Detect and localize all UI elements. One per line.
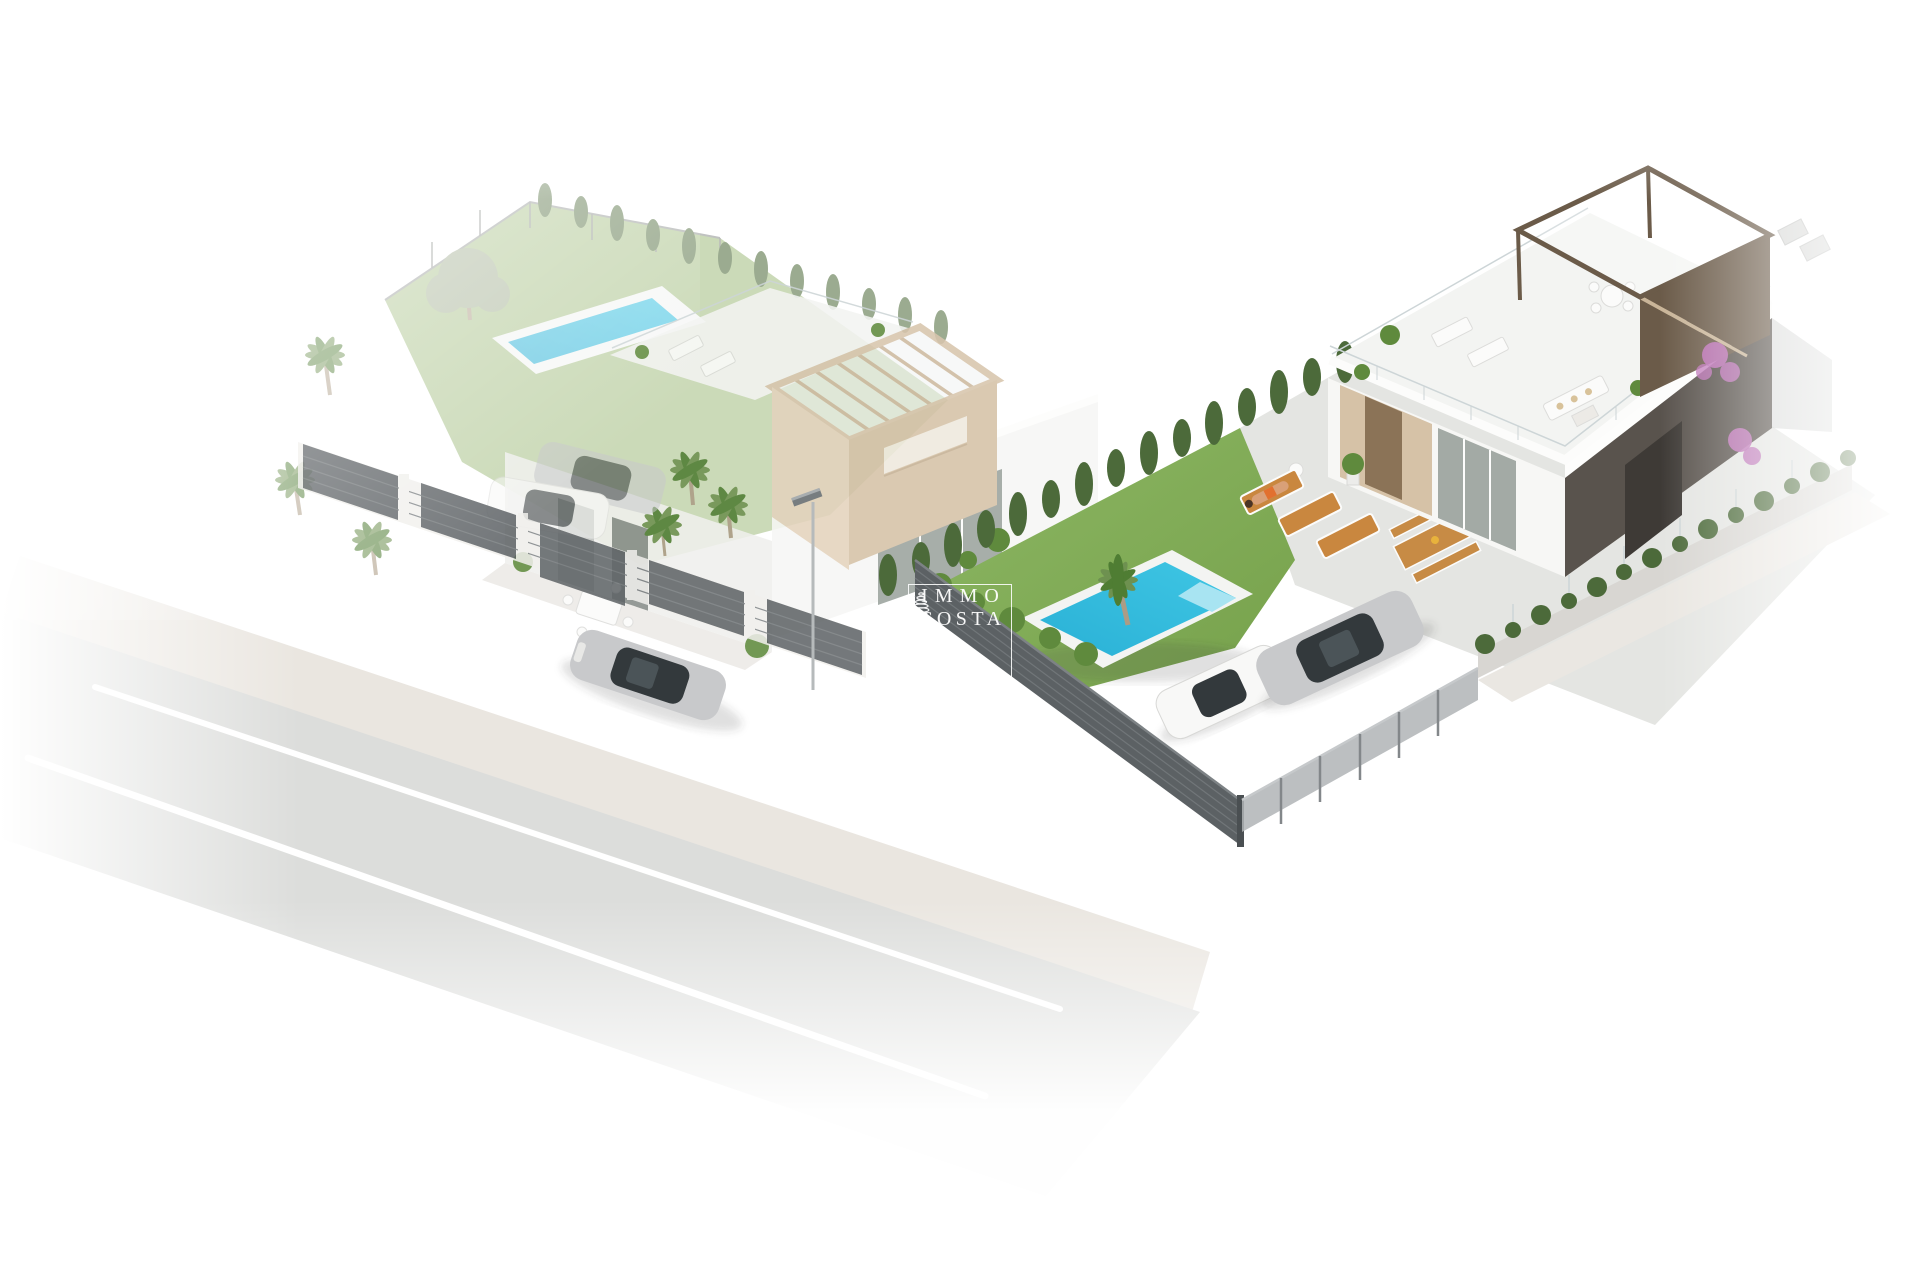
roof-plant [1380,325,1400,345]
fence-pillar [745,590,755,638]
roof-plant [1354,364,1370,380]
cypress-spiral-icon [909,590,933,622]
pergola-post [1518,230,1520,300]
right-villa-front-door [1365,396,1402,500]
render-canvas: IMMO COSTA [0,0,1920,1280]
roof-plant-pot [871,323,885,337]
watermark-logo: IMMO COSTA [908,584,1012,690]
